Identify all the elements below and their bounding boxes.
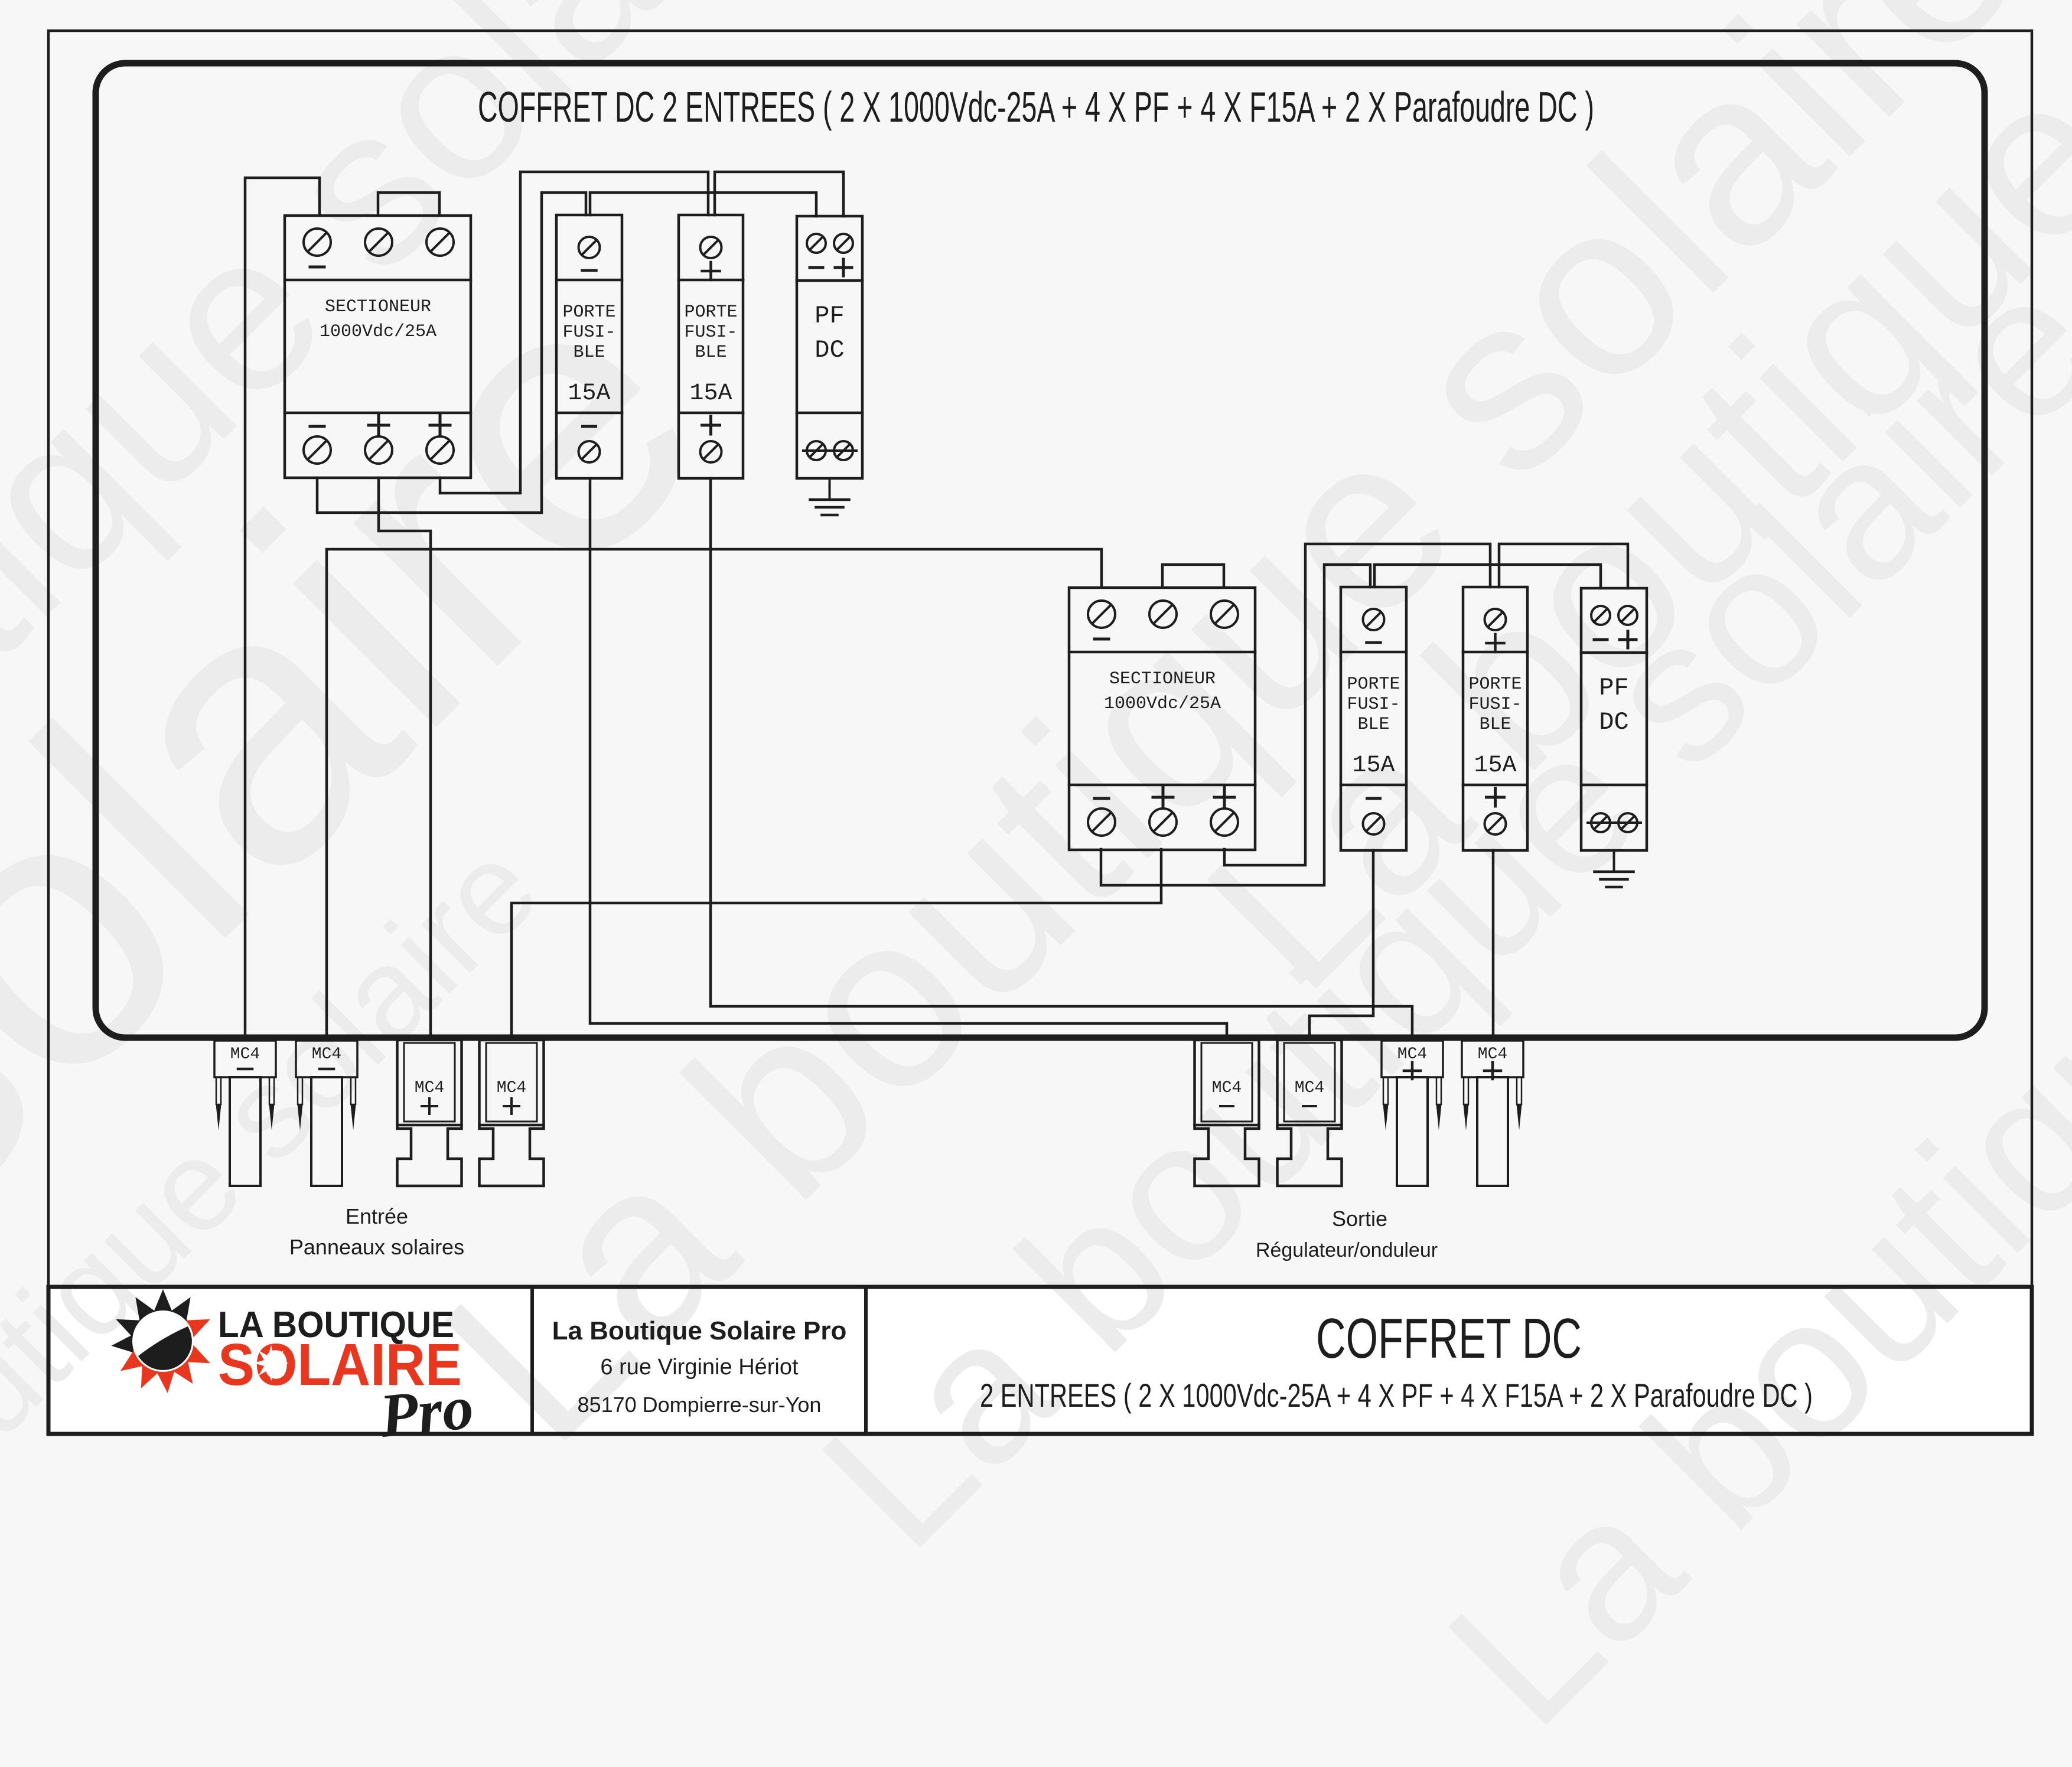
svg-text:BLE: BLE <box>695 343 726 363</box>
svg-text:MC4: MC4 <box>1295 1079 1324 1097</box>
svg-text:2 ENTREES ( 2 X 1000Vdc-25A +: 2 ENTREES ( 2 X 1000Vdc-25A + 4 X PF + 4… <box>980 1377 1813 1414</box>
svg-text:1000Vdc/25A: 1000Vdc/25A <box>320 322 436 342</box>
svg-text:MC4: MC4 <box>497 1079 526 1097</box>
svg-text:FUSI-: FUSI- <box>1468 695 1522 715</box>
svg-text:15A: 15A <box>1352 752 1395 779</box>
svg-text:SECTIONEUR: SECTIONEUR <box>325 297 431 317</box>
svg-text:15A: 15A <box>1474 752 1516 779</box>
svg-text:15A: 15A <box>568 380 610 407</box>
svg-text:PORTE: PORTE <box>562 302 615 322</box>
svg-text:DC: DC <box>1599 708 1628 736</box>
svg-text:6 rue Virginie Hériot: 6 rue Virginie Hériot <box>600 1355 799 1380</box>
svg-text:PORTE: PORTE <box>684 302 737 322</box>
svg-text:FUSI-: FUSI- <box>1347 695 1400 715</box>
svg-text:Sortie: Sortie <box>1332 1207 1387 1231</box>
svg-text:FUSI-: FUSI- <box>684 322 737 343</box>
svg-text:MC4: MC4 <box>1478 1045 1507 1064</box>
svg-text:MC4: MC4 <box>312 1045 341 1064</box>
svg-text:PF: PF <box>815 302 844 330</box>
svg-text:COFFRET DC: COFFRET DC <box>1316 1307 1582 1370</box>
svg-text:MC4: MC4 <box>1212 1079 1242 1097</box>
svg-text:Régulateur/onduleur: Régulateur/onduleur <box>1256 1239 1438 1261</box>
svg-text:PF: PF <box>1599 674 1628 702</box>
svg-text:BLE: BLE <box>1479 715 1511 735</box>
svg-text:PORTE: PORTE <box>1347 674 1400 695</box>
svg-text:DC: DC <box>815 336 844 364</box>
svg-text:COFFRET DC 2 ENTREES ( 2 X 100: COFFRET DC 2 ENTREES ( 2 X 1000Vdc-25A +… <box>478 84 1594 131</box>
svg-text:Pro: Pro <box>376 1372 477 1450</box>
svg-text:SECTIONEUR: SECTIONEUR <box>1109 669 1216 689</box>
svg-text:MC4: MC4 <box>415 1079 444 1097</box>
svg-text:MC4: MC4 <box>1397 1045 1427 1064</box>
svg-text:La Boutique Solaire Pro: La Boutique Solaire Pro <box>552 1316 847 1345</box>
svg-text:85170 Dompierre-sur-Yon: 85170 Dompierre-sur-Yon <box>578 1393 822 1417</box>
svg-text:Panneaux solaires: Panneaux solaires <box>289 1235 464 1259</box>
svg-text:1000Vdc/25A: 1000Vdc/25A <box>1104 694 1221 714</box>
svg-text:MC4: MC4 <box>230 1045 260 1064</box>
svg-text:BLE: BLE <box>573 343 605 363</box>
svg-text:Entrée: Entrée <box>346 1204 408 1228</box>
svg-text:BLE: BLE <box>1357 715 1389 735</box>
svg-text:PORTE: PORTE <box>1468 674 1522 695</box>
svg-text:15A: 15A <box>689 380 732 407</box>
svg-text:FUSI-: FUSI- <box>562 322 615 343</box>
